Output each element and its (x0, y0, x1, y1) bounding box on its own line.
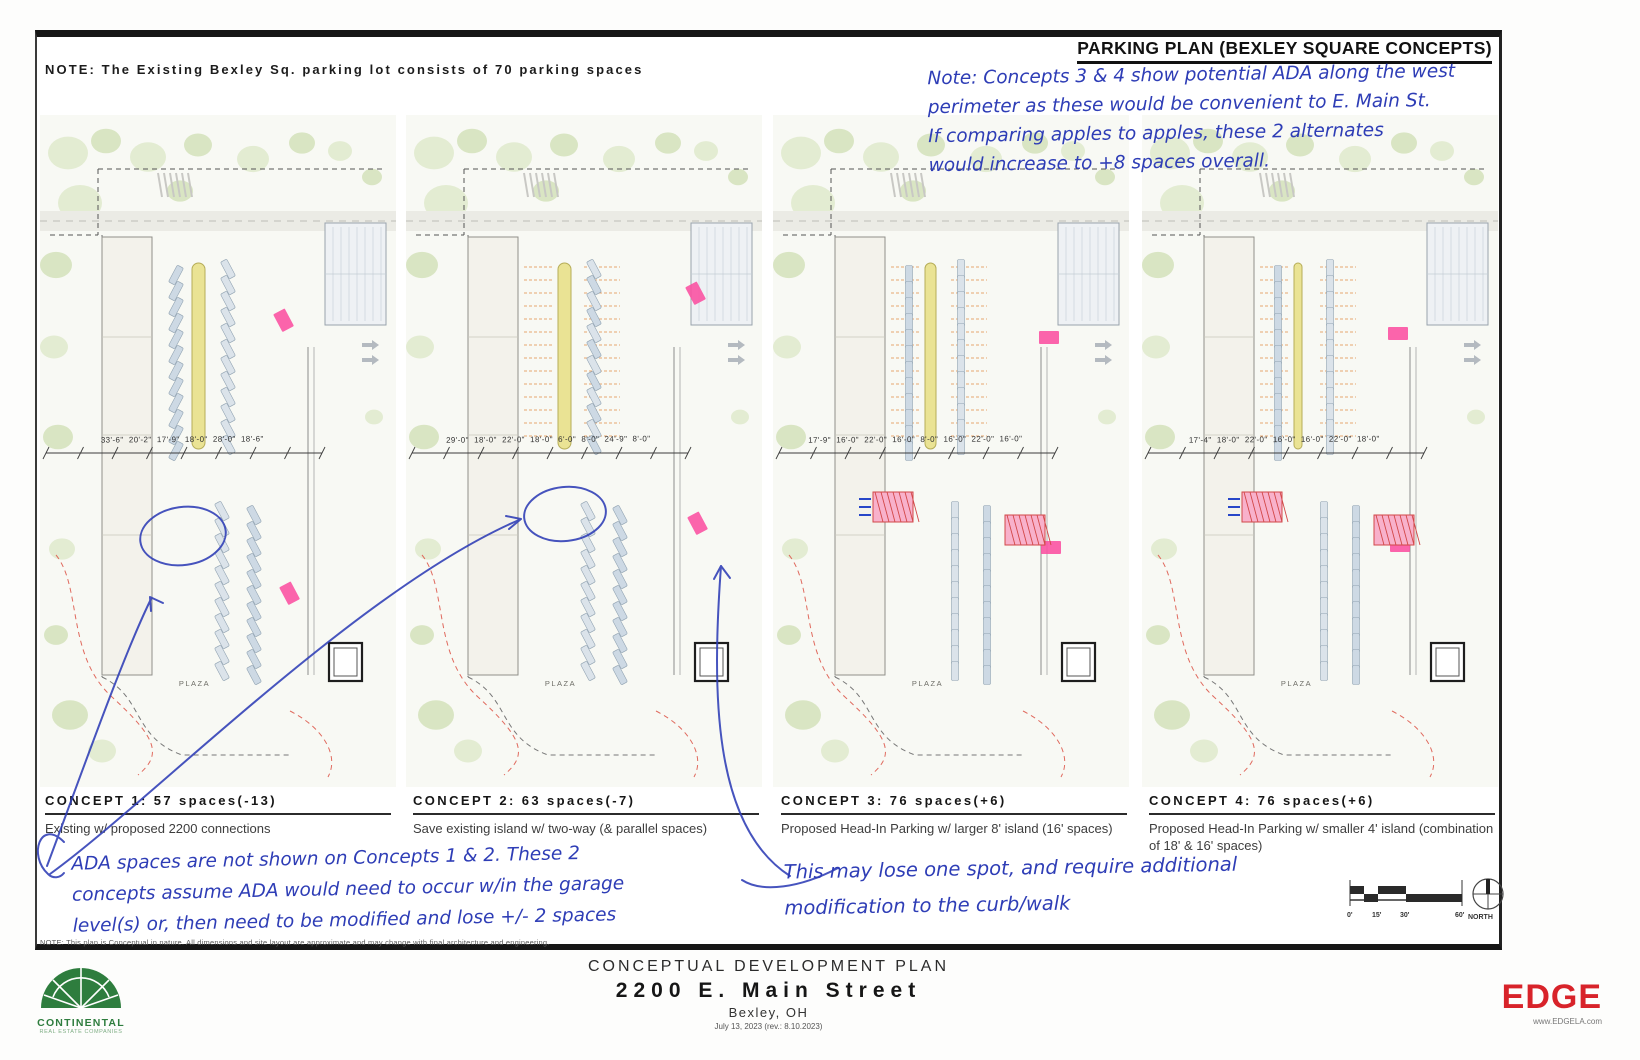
plaza-label: PLAZA (912, 679, 943, 688)
project-city: Bexley, OH (35, 1005, 1502, 1020)
concept-title: CONCEPT 1: 57 spaces(-13) (45, 793, 391, 815)
scale-tick-0: 0' (1347, 912, 1353, 919)
concept-4-plan: 17'-4" 18'-0" 22'-0" 16'-0" 16'-0" 22'-0… (1142, 115, 1498, 787)
concept-4-caption: CONCEPT 4: 76 spaces(+6) Proposed Head-I… (1149, 793, 1495, 855)
continental-logo: CONTINENTAL REAL ESTATE COMPANIES (26, 962, 136, 1035)
dimension-labels: 17'-4" 18'-0" 22'-0" 16'-0" 16'-0" 22'-0… (1149, 434, 1420, 445)
handwritten-note-bottom-middle: This may lose one spot, and require addi… (783, 845, 1304, 926)
handwritten-note-top-right: Note: Concepts 3 & 4 show potential ADA … (927, 56, 1529, 180)
plaza-label: PLAZA (179, 679, 210, 688)
dimension-labels: 29'-0" 18'-0" 22'-0" 18'-0" 6'-0" 8'-0" … (413, 434, 684, 445)
edge-logo: EDGE www.EDGELA.com (1502, 978, 1602, 1026)
site-plan-drawing (773, 115, 1129, 787)
continental-arch-icon (36, 962, 126, 1010)
concept-subtitle: Existing w/ proposed 2200 connections (45, 821, 391, 838)
concept-2-plan: 29'-0" 18'-0" 22'-0" 18'-0" 6'-0" 8'-0" … (406, 115, 762, 787)
project-address: 2200 E. Main Street (35, 979, 1502, 1003)
dimension-labels: 33'-6" 20'-2" 17'-9" 18'-0" 28'-0" 18'-6… (47, 434, 318, 445)
handwritten-note-bottom-left: ADA spaces are not shown on Concepts 1 &… (71, 835, 713, 941)
title-block: CONCEPTUAL DEVELOPMENT PLAN 2200 E. Main… (35, 958, 1502, 1031)
scale-tick-60: 60' (1455, 912, 1464, 919)
concept-1-caption: CONCEPT 1: 57 spaces(-13) Existing w/ pr… (45, 793, 391, 838)
concept-title: CONCEPT 2: 63 spaces(-7) (413, 793, 759, 815)
scale-tick-30: 30' (1400, 912, 1409, 919)
plan-date: July 13, 2023 (rev.: 8.10.2023) (35, 1022, 1502, 1031)
plan-type-label: CONCEPTUAL DEVELOPMENT PLAN (35, 958, 1502, 976)
continental-name: CONTINENTAL (26, 1017, 136, 1029)
concept-2-caption: CONCEPT 2: 63 spaces(-7) Save existing i… (413, 793, 759, 838)
edge-url: www.EDGELA.com (1502, 1017, 1602, 1026)
concept-3-caption: CONCEPT 3: 76 spaces(+6) Proposed Head-I… (781, 793, 1127, 838)
dimension-labels: 17'-9" 16'-0" 22'-0" 16'-0" 8'-0" 16'-0"… (780, 434, 1051, 445)
concept-3-plan: 17'-9" 16'-0" 22'-0" 16'-0" 8'-0" 16'-0"… (773, 115, 1129, 787)
edge-name: EDGE (1502, 978, 1602, 1017)
site-plan-drawing (406, 115, 762, 787)
scale-bar: 0' 15' 30' 60' NORTH (1340, 872, 1510, 930)
site-plan-drawing (1142, 115, 1498, 787)
concept-1-plan: 33'-6" 20'-2" 17'-9" 18'-0" 28'-0" 18'-6… (40, 115, 396, 787)
concept-title: CONCEPT 4: 76 spaces(+6) (1149, 793, 1495, 815)
north-label: NORTH (1468, 914, 1493, 921)
scale-bar-graphic (1340, 872, 1510, 930)
continental-tagline: REAL ESTATE COMPANIES (26, 1029, 136, 1035)
concept-title: CONCEPT 3: 76 spaces(+6) (781, 793, 1127, 815)
concept-subtitle: Proposed Head-In Parking w/ larger 8' is… (781, 821, 1127, 838)
site-plan-drawing (40, 115, 396, 787)
plaza-label: PLAZA (545, 679, 576, 688)
existing-parking-note: NOTE: The Existing Bexley Sq. parking lo… (45, 62, 643, 77)
plaza-label: PLAZA (1281, 679, 1312, 688)
scale-tick-15: 15' (1372, 912, 1381, 919)
